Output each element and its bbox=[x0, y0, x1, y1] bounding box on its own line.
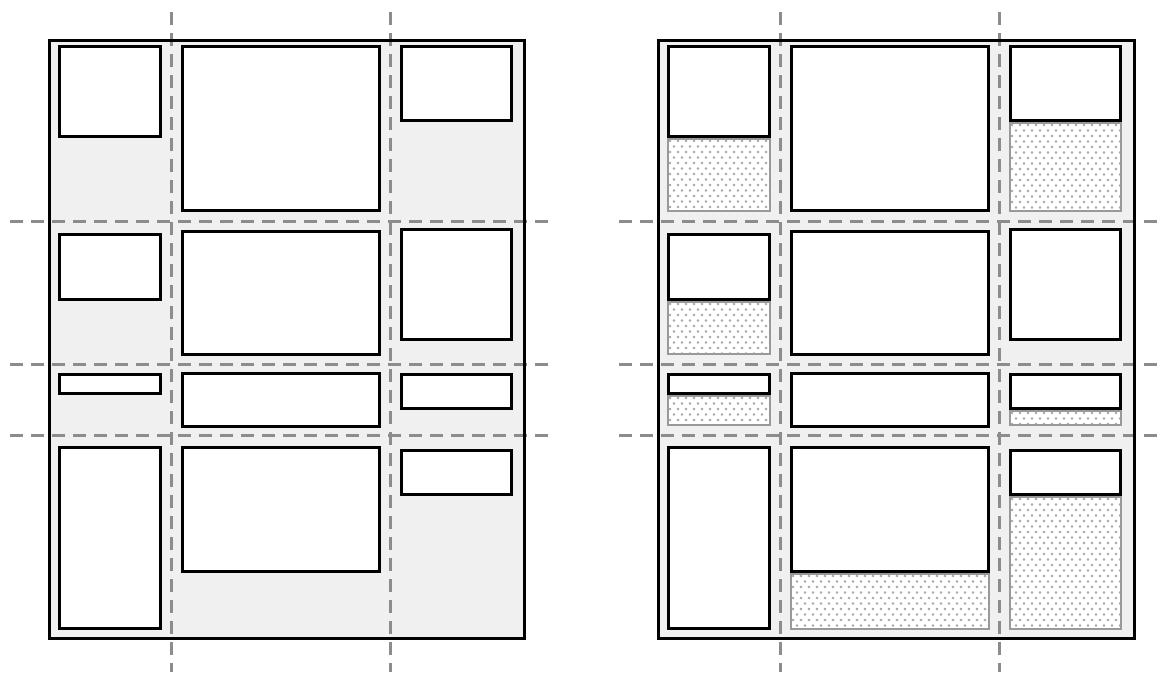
dotted-leftover-grid-container-border bbox=[657, 39, 1136, 640]
plain-grid-container-border bbox=[48, 39, 526, 640]
diagram-canvas bbox=[0, 0, 1171, 679]
